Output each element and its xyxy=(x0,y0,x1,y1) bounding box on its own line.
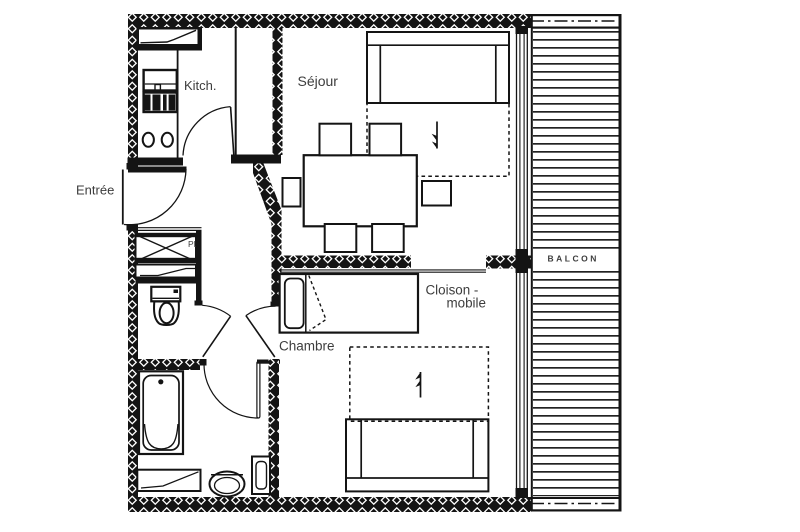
svg-text:mobile: mobile xyxy=(447,296,486,311)
svg-text:Chambre: Chambre xyxy=(279,339,335,354)
svg-text:Séjour: Séjour xyxy=(298,73,339,89)
svg-text:Entrée: Entrée xyxy=(76,183,114,198)
svg-text:Kitch.: Kitch. xyxy=(184,78,217,93)
svg-text:BALCON: BALCON xyxy=(548,254,599,264)
